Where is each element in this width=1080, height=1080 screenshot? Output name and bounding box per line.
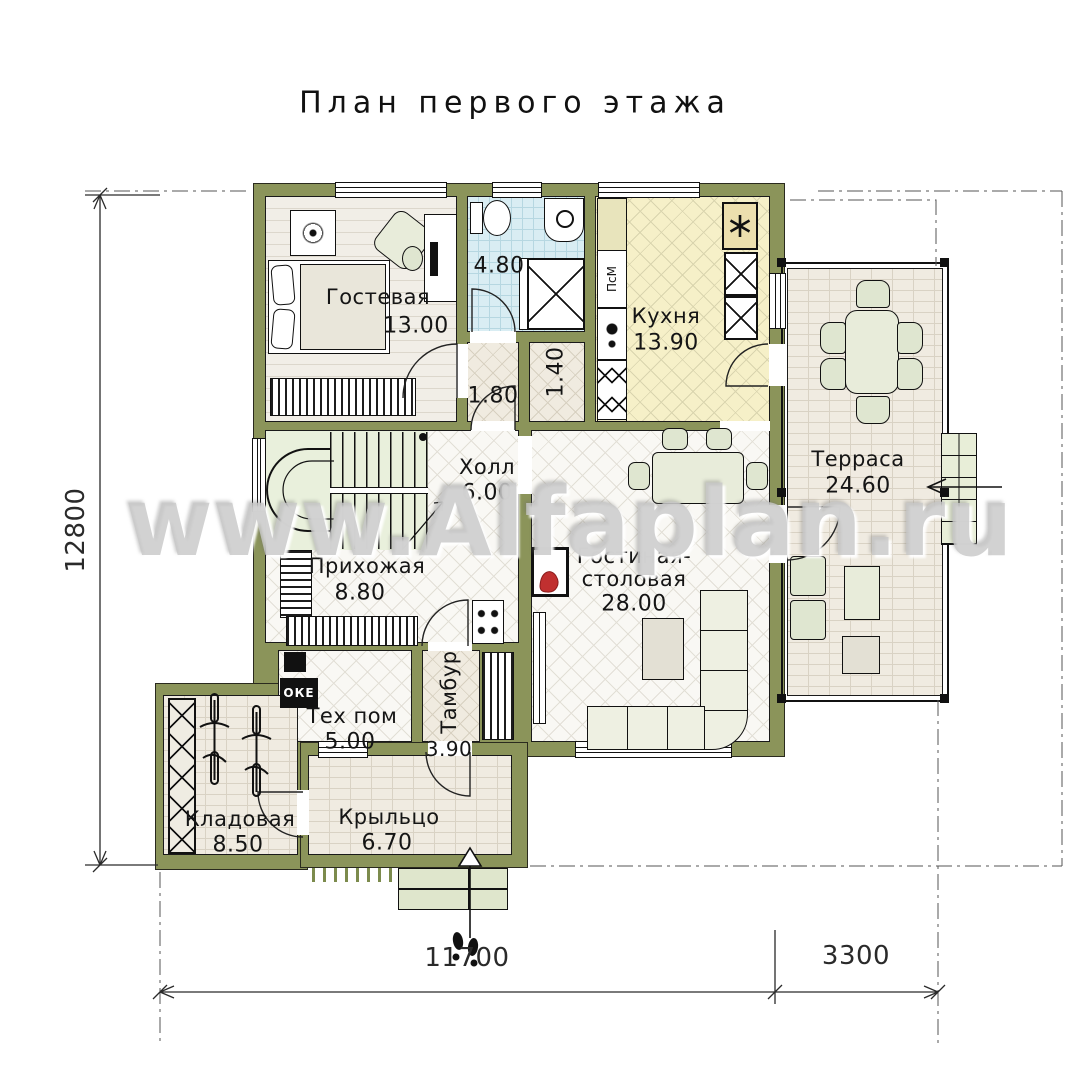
window-kitchen-terrace: [769, 273, 786, 329]
label-storage-area: 8.50: [213, 833, 264, 858]
pillow: [270, 308, 295, 350]
lounge-side-table: [842, 636, 880, 674]
label-bathroom-area: 4.80: [474, 254, 525, 279]
label-porch-name: Крыльцо: [338, 805, 439, 829]
kitchen-sink: [597, 308, 627, 360]
terrace-post: [940, 694, 949, 703]
label-hallway-area: 8.80: [335, 581, 386, 606]
label-storage-name: Кладовая: [185, 807, 295, 831]
kitchen-cabinet: [724, 296, 758, 340]
coat-rack-horizontal: [286, 616, 418, 646]
terrace-chair: [897, 358, 923, 390]
dining-chair: [706, 428, 732, 450]
label-kitchen-name: Кухня: [632, 304, 701, 328]
dishwasher-label: ПсМ: [605, 266, 619, 292]
dim-width-main: 11700: [424, 943, 509, 973]
fridge: [722, 202, 758, 250]
door-opening-corridor-hall: [471, 421, 515, 431]
sofa-horizontal: [587, 706, 705, 750]
label-closet-area: 1.40: [544, 347, 569, 398]
bath-sink-bowl: [556, 210, 574, 228]
desk-monitor: [430, 242, 438, 276]
label-tech-area: 5.00: [325, 730, 376, 755]
page-title: План первого этажа: [299, 86, 731, 121]
terrace-table: [845, 310, 899, 394]
label-corridor-area: 1.80: [468, 384, 519, 409]
terrace-chair: [856, 396, 890, 424]
tech-unit: [284, 652, 306, 672]
door-opening-bathroom: [470, 331, 516, 343]
watermark: www.Alfaplan.ru: [125, 468, 1045, 578]
porch-plants: [312, 868, 394, 882]
window-bathroom: [492, 182, 542, 198]
toilet-bowl: [483, 200, 511, 236]
sofa-vertical: [700, 590, 748, 750]
dining-chair: [662, 428, 688, 450]
label-kitchen-area: 13.90: [633, 331, 698, 356]
label-tambour-name: Тамбур: [437, 650, 461, 733]
pillow: [270, 264, 295, 306]
tv-unit: [533, 612, 546, 724]
shower-cabin: [527, 258, 585, 330]
door-opening-storage: [297, 790, 309, 835]
coffee-table: [642, 618, 684, 680]
terrace-chair: [897, 322, 923, 354]
shoe-cabinet: [472, 600, 504, 644]
door-opening-kitchen-terrace: [769, 344, 786, 386]
room-corridor-floor: [467, 342, 519, 422]
dim-width-terrace: 3300: [822, 941, 890, 971]
label-living-area: 28.00: [601, 592, 666, 617]
label-guest-name: Гостевая: [326, 285, 430, 309]
window-guest: [335, 182, 447, 198]
label-porch-area: 6.70: [362, 831, 413, 856]
guest-wardrobe: [270, 378, 416, 416]
terrace-chair: [820, 358, 846, 390]
label-tambour-area: 3.90: [426, 737, 473, 761]
terrace-post: [777, 694, 786, 703]
floor-plan-canvas: План первого этажа: [0, 0, 1080, 1080]
window-kitchen: [598, 182, 700, 198]
tambour-wardrobe: [482, 652, 514, 740]
label-guest-area: 13.00: [383, 314, 448, 339]
desk-chair: [402, 246, 423, 271]
toilet-tank: [470, 202, 483, 234]
terrace-chair: [856, 280, 890, 308]
label-tech-name: Тех пом: [307, 704, 398, 728]
dim-height-total: 12800: [61, 487, 91, 572]
stove: [597, 360, 627, 420]
terrace-chair: [820, 322, 846, 354]
terrace-post: [777, 258, 786, 267]
kitchen-cabinet: [724, 252, 758, 296]
terrace-post: [940, 258, 949, 267]
porch-steps: [398, 868, 508, 910]
boiler-label: ОКЕ: [283, 686, 314, 700]
lounge-chair: [790, 600, 826, 640]
nightstand-lamp: [290, 210, 336, 256]
door-opening-guest: [456, 344, 468, 398]
